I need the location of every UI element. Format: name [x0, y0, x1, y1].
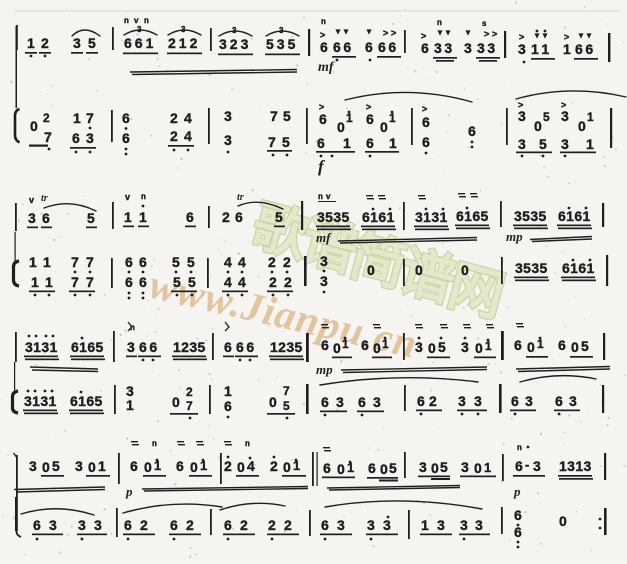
svg-text:3: 3	[224, 108, 232, 124]
svg-text:0: 0	[367, 262, 375, 278]
svg-text:6: 6	[33, 517, 41, 533]
svg-text:6: 6	[320, 39, 328, 55]
svg-text:0: 0	[283, 459, 291, 475]
svg-text:6: 6	[122, 130, 130, 146]
svg-text:66: 66	[236, 339, 257, 355]
svg-text:2: 2	[269, 274, 277, 290]
svg-text:6165: 6165	[456, 208, 489, 224]
svg-text:0: 0	[337, 461, 345, 477]
svg-text:6: 6	[224, 339, 232, 355]
svg-text:>: >	[391, 28, 396, 38]
svg-text:2: 2	[429, 393, 437, 409]
svg-text:3: 3	[474, 393, 482, 409]
svg-text:0: 0	[30, 118, 38, 134]
svg-text:6165: 6165	[71, 339, 104, 355]
svg-text:3131: 3131	[24, 393, 57, 409]
svg-text:1: 1	[98, 458, 106, 474]
svg-text:6: 6	[122, 110, 130, 126]
svg-text:tr: tr	[41, 193, 48, 204]
svg-text:p: p	[513, 484, 521, 499]
svg-text:4: 4	[238, 274, 246, 290]
svg-text:0: 0	[571, 339, 579, 355]
svg-text:3: 3	[232, 26, 237, 35]
svg-text:6: 6	[514, 507, 522, 523]
svg-text:7: 7	[71, 254, 79, 270]
svg-text:5: 5	[581, 338, 589, 354]
svg-text:6165: 6165	[70, 393, 103, 409]
svg-text:0: 0	[172, 394, 180, 410]
svg-text:3131: 3131	[415, 209, 448, 225]
svg-text:1: 1	[29, 254, 37, 270]
svg-text:n: n	[141, 192, 146, 201]
svg-text:1: 1	[126, 397, 134, 413]
svg-text:2: 2	[186, 385, 193, 399]
svg-text:-: -	[525, 457, 529, 472]
svg-text:6: 6	[515, 458, 523, 474]
svg-text:2: 2	[43, 111, 50, 125]
svg-text:3: 3	[533, 458, 541, 474]
svg-text:3: 3	[518, 136, 526, 152]
svg-text:2: 2	[268, 254, 276, 270]
svg-text:3: 3	[461, 459, 469, 475]
svg-text:2: 2	[222, 209, 230, 225]
svg-text:5: 5	[187, 254, 195, 270]
svg-text:6: 6	[224, 398, 232, 414]
svg-text:7: 7	[44, 129, 52, 145]
svg-text:2: 2	[270, 458, 278, 474]
svg-text:5: 5	[52, 458, 60, 474]
svg-text:7: 7	[283, 384, 290, 398]
svg-text:3: 3	[127, 339, 135, 355]
svg-text:3: 3	[437, 517, 445, 533]
svg-text:4: 4	[224, 254, 232, 270]
svg-text:3535: 3535	[515, 260, 548, 276]
svg-text:1: 1	[27, 35, 35, 51]
svg-text:0: 0	[269, 394, 277, 410]
svg-text:3535: 3535	[514, 208, 547, 224]
svg-text:>: >	[564, 32, 569, 42]
svg-text:1: 1	[43, 254, 51, 270]
svg-text:3: 3	[460, 517, 468, 533]
svg-text:7: 7	[86, 110, 94, 126]
svg-text:6: 6	[366, 135, 374, 151]
svg-text:3: 3	[561, 136, 569, 152]
svg-text:6: 6	[42, 210, 50, 226]
svg-text:6: 6	[422, 114, 430, 130]
svg-text:323: 323	[219, 36, 251, 52]
svg-text:5: 5	[172, 254, 180, 270]
svg-text:2: 2	[240, 517, 248, 533]
svg-text:3535: 3535	[317, 209, 350, 225]
svg-text:5: 5	[440, 459, 448, 475]
svg-text:n: n	[144, 16, 149, 25]
svg-text:3: 3	[224, 132, 232, 148]
svg-text:0: 0	[88, 459, 96, 475]
svg-text:tr: tr	[237, 192, 244, 203]
svg-text:6: 6	[321, 517, 329, 533]
svg-text:0: 0	[373, 340, 381, 356]
svg-text:n: n	[152, 439, 157, 448]
svg-text:n: n	[437, 18, 442, 27]
svg-text:1: 1	[124, 209, 132, 225]
svg-text:0: 0	[415, 262, 423, 278]
svg-text:6: 6	[125, 274, 133, 290]
svg-text:33: 33	[434, 40, 455, 56]
svg-text:n: n	[517, 443, 522, 452]
svg-text:3: 3	[94, 517, 102, 533]
svg-text:3: 3	[419, 459, 427, 475]
svg-text:5: 5	[173, 274, 181, 290]
svg-text:6: 6	[368, 460, 376, 476]
svg-text:6: 6	[139, 274, 147, 290]
svg-text:5: 5	[282, 134, 290, 150]
svg-text:n: n	[318, 192, 323, 201]
svg-text:6: 6	[186, 209, 194, 225]
svg-text:11: 11	[531, 41, 553, 57]
svg-text:66: 66	[333, 39, 354, 55]
svg-text:6: 6	[319, 111, 327, 127]
svg-text:2: 2	[186, 517, 194, 533]
svg-text:0: 0	[534, 118, 542, 134]
svg-text:3: 3	[279, 26, 284, 35]
svg-text:2: 2	[140, 517, 148, 533]
svg-text:v: v	[125, 192, 130, 202]
svg-text:3: 3	[181, 25, 186, 34]
svg-text:5: 5	[543, 110, 550, 124]
svg-text:3: 3	[475, 517, 483, 533]
svg-text:1: 1	[586, 136, 594, 152]
svg-text:6: 6	[321, 394, 329, 410]
svg-text:0: 0	[144, 459, 152, 475]
svg-text:5: 5	[88, 35, 96, 51]
svg-text:3: 3	[337, 517, 345, 533]
svg-text:5: 5	[389, 460, 397, 476]
svg-text:>: >	[561, 100, 566, 110]
svg-text:6: 6	[421, 40, 429, 56]
svg-text:2: 2	[170, 128, 178, 144]
svg-text:mp: mp	[316, 362, 333, 377]
svg-text:1: 1	[45, 274, 53, 290]
svg-text:2: 2	[170, 110, 178, 126]
svg-text:mp: mp	[506, 229, 523, 244]
svg-text:n: n	[124, 16, 129, 25]
svg-text:6: 6	[422, 134, 430, 150]
svg-text:6: 6	[365, 39, 373, 55]
svg-text:p: p	[125, 484, 133, 499]
svg-text:3: 3	[569, 393, 577, 409]
svg-text:0: 0	[559, 513, 567, 529]
svg-text:2: 2	[224, 458, 232, 474]
svg-text:6: 6	[125, 254, 133, 270]
svg-text:0: 0	[337, 119, 345, 135]
svg-text:v: v	[326, 192, 331, 201]
svg-text:>: >	[421, 31, 426, 41]
svg-text:5: 5	[438, 339, 446, 355]
svg-text:7: 7	[186, 399, 193, 413]
svg-text:6: 6	[176, 458, 184, 474]
svg-text:3: 3	[78, 517, 86, 533]
svg-text:>: >	[518, 100, 523, 110]
svg-text:1: 1	[73, 110, 81, 126]
svg-text:3: 3	[415, 339, 423, 355]
svg-text:>: >	[366, 102, 371, 112]
svg-text:0: 0	[527, 339, 535, 355]
svg-text:1: 1	[389, 135, 397, 151]
svg-text:6: 6	[417, 393, 425, 409]
svg-text:5: 5	[539, 136, 547, 152]
svg-text:6: 6	[468, 123, 476, 139]
svg-text:6: 6	[235, 209, 243, 225]
svg-text:3131: 3131	[25, 339, 58, 355]
svg-text:>: >	[492, 29, 497, 39]
svg-text:s: s	[482, 19, 487, 28]
svg-text:2: 2	[41, 35, 49, 51]
svg-text:6: 6	[124, 517, 132, 533]
svg-text:1235: 1235	[173, 339, 206, 355]
svg-text:>: >	[422, 104, 427, 114]
svg-text:66: 66	[139, 339, 160, 355]
svg-text:6: 6	[558, 337, 566, 353]
svg-text:5: 5	[87, 210, 95, 226]
svg-text:1: 1	[343, 135, 351, 151]
svg-text:>: >	[319, 102, 324, 112]
svg-text:3: 3	[373, 394, 381, 410]
svg-text:3: 3	[75, 458, 83, 474]
svg-text:v: v	[134, 16, 139, 25]
svg-text:6: 6	[555, 393, 563, 409]
svg-text:66: 66	[575, 41, 596, 57]
svg-text:2: 2	[283, 254, 291, 270]
svg-text:1313: 1313	[559, 458, 592, 474]
svg-text:212: 212	[168, 35, 200, 51]
svg-text:n: n	[245, 439, 250, 448]
svg-text:3: 3	[561, 108, 569, 124]
svg-text:661: 661	[124, 35, 156, 51]
svg-text:0: 0	[42, 459, 50, 475]
svg-text:3: 3	[383, 517, 391, 533]
svg-text:6: 6	[366, 111, 374, 127]
svg-text:>: >	[519, 32, 524, 42]
svg-text:3: 3	[73, 35, 81, 51]
svg-text:3: 3	[525, 393, 533, 409]
svg-text:0: 0	[578, 118, 586, 134]
svg-text:6161: 6161	[558, 208, 591, 224]
svg-text:6: 6	[514, 337, 522, 353]
svg-text:4: 4	[224, 274, 232, 290]
svg-text:v: v	[29, 195, 34, 205]
svg-text:>: >	[383, 28, 388, 38]
svg-text:4: 4	[184, 128, 192, 144]
svg-text:2: 2	[284, 274, 292, 290]
svg-text:3: 3	[137, 25, 142, 34]
svg-text:3: 3	[367, 517, 375, 533]
svg-text:0: 0	[237, 459, 245, 475]
svg-text:6161: 6161	[562, 260, 595, 276]
svg-text:535: 535	[266, 36, 298, 52]
svg-text:1: 1	[31, 274, 39, 290]
svg-text:7: 7	[268, 134, 276, 150]
svg-text:5: 5	[283, 108, 291, 124]
svg-text:6: 6	[358, 394, 366, 410]
svg-text:4: 4	[247, 458, 255, 474]
svg-text:1: 1	[139, 209, 147, 225]
svg-text:7: 7	[86, 274, 94, 290]
svg-text:6: 6	[139, 254, 147, 270]
svg-text:4: 4	[184, 110, 192, 126]
svg-text:0: 0	[380, 461, 388, 477]
svg-text:3: 3	[518, 41, 526, 57]
svg-text:5: 5	[188, 274, 196, 290]
svg-text:4: 4	[238, 254, 246, 270]
svg-text:0: 0	[380, 119, 388, 135]
svg-text:66: 66	[378, 39, 399, 55]
svg-text:3: 3	[518, 108, 526, 124]
svg-text:0: 0	[461, 262, 469, 278]
svg-text:6161: 6161	[362, 209, 395, 225]
svg-text:6: 6	[321, 337, 329, 353]
svg-text:6: 6	[511, 393, 519, 409]
svg-text:6: 6	[323, 460, 331, 476]
svg-text:3: 3	[320, 273, 328, 289]
svg-text:0: 0	[475, 340, 483, 356]
svg-text:mf: mf	[316, 230, 332, 245]
svg-text:0: 0	[190, 459, 198, 475]
svg-text:1: 1	[224, 383, 232, 399]
svg-text:0: 0	[333, 340, 341, 356]
svg-text:3: 3	[86, 130, 94, 146]
svg-text:6: 6	[130, 458, 138, 474]
svg-text:n: n	[321, 17, 326, 26]
svg-text:>: >	[320, 30, 325, 40]
svg-text:3: 3	[464, 40, 472, 56]
svg-text:7: 7	[71, 274, 79, 290]
svg-text:2: 2	[268, 517, 276, 533]
svg-text:0: 0	[431, 460, 439, 476]
svg-text:3: 3	[29, 458, 37, 474]
svg-text:0: 0	[474, 460, 482, 476]
svg-text:3: 3	[458, 393, 466, 409]
svg-text:7: 7	[86, 254, 94, 270]
svg-text:5: 5	[283, 399, 290, 413]
svg-text:0: 0	[428, 340, 436, 356]
svg-text:1: 1	[484, 460, 491, 475]
svg-text:3: 3	[461, 339, 469, 355]
svg-text:mf: mf	[318, 60, 335, 75]
svg-text:7: 7	[270, 108, 278, 124]
svg-text:6: 6	[170, 517, 178, 533]
svg-text:33: 33	[477, 40, 498, 56]
svg-text:1: 1	[421, 517, 429, 533]
svg-text:6: 6	[72, 130, 80, 146]
svg-text:5: 5	[275, 209, 283, 225]
svg-text:>: >	[484, 29, 489, 39]
svg-text:1: 1	[587, 110, 594, 124]
svg-text:3: 3	[336, 394, 344, 410]
svg-text:2: 2	[284, 517, 292, 533]
svg-text:6: 6	[514, 524, 522, 540]
svg-text:3: 3	[49, 517, 57, 533]
svg-text:3: 3	[320, 253, 328, 269]
svg-text:6: 6	[317, 135, 325, 151]
svg-text:3: 3	[28, 210, 36, 226]
svg-text:6: 6	[224, 517, 232, 533]
svg-text:1: 1	[563, 41, 571, 57]
svg-text:6: 6	[361, 337, 369, 353]
svg-text:1235: 1235	[270, 339, 303, 355]
